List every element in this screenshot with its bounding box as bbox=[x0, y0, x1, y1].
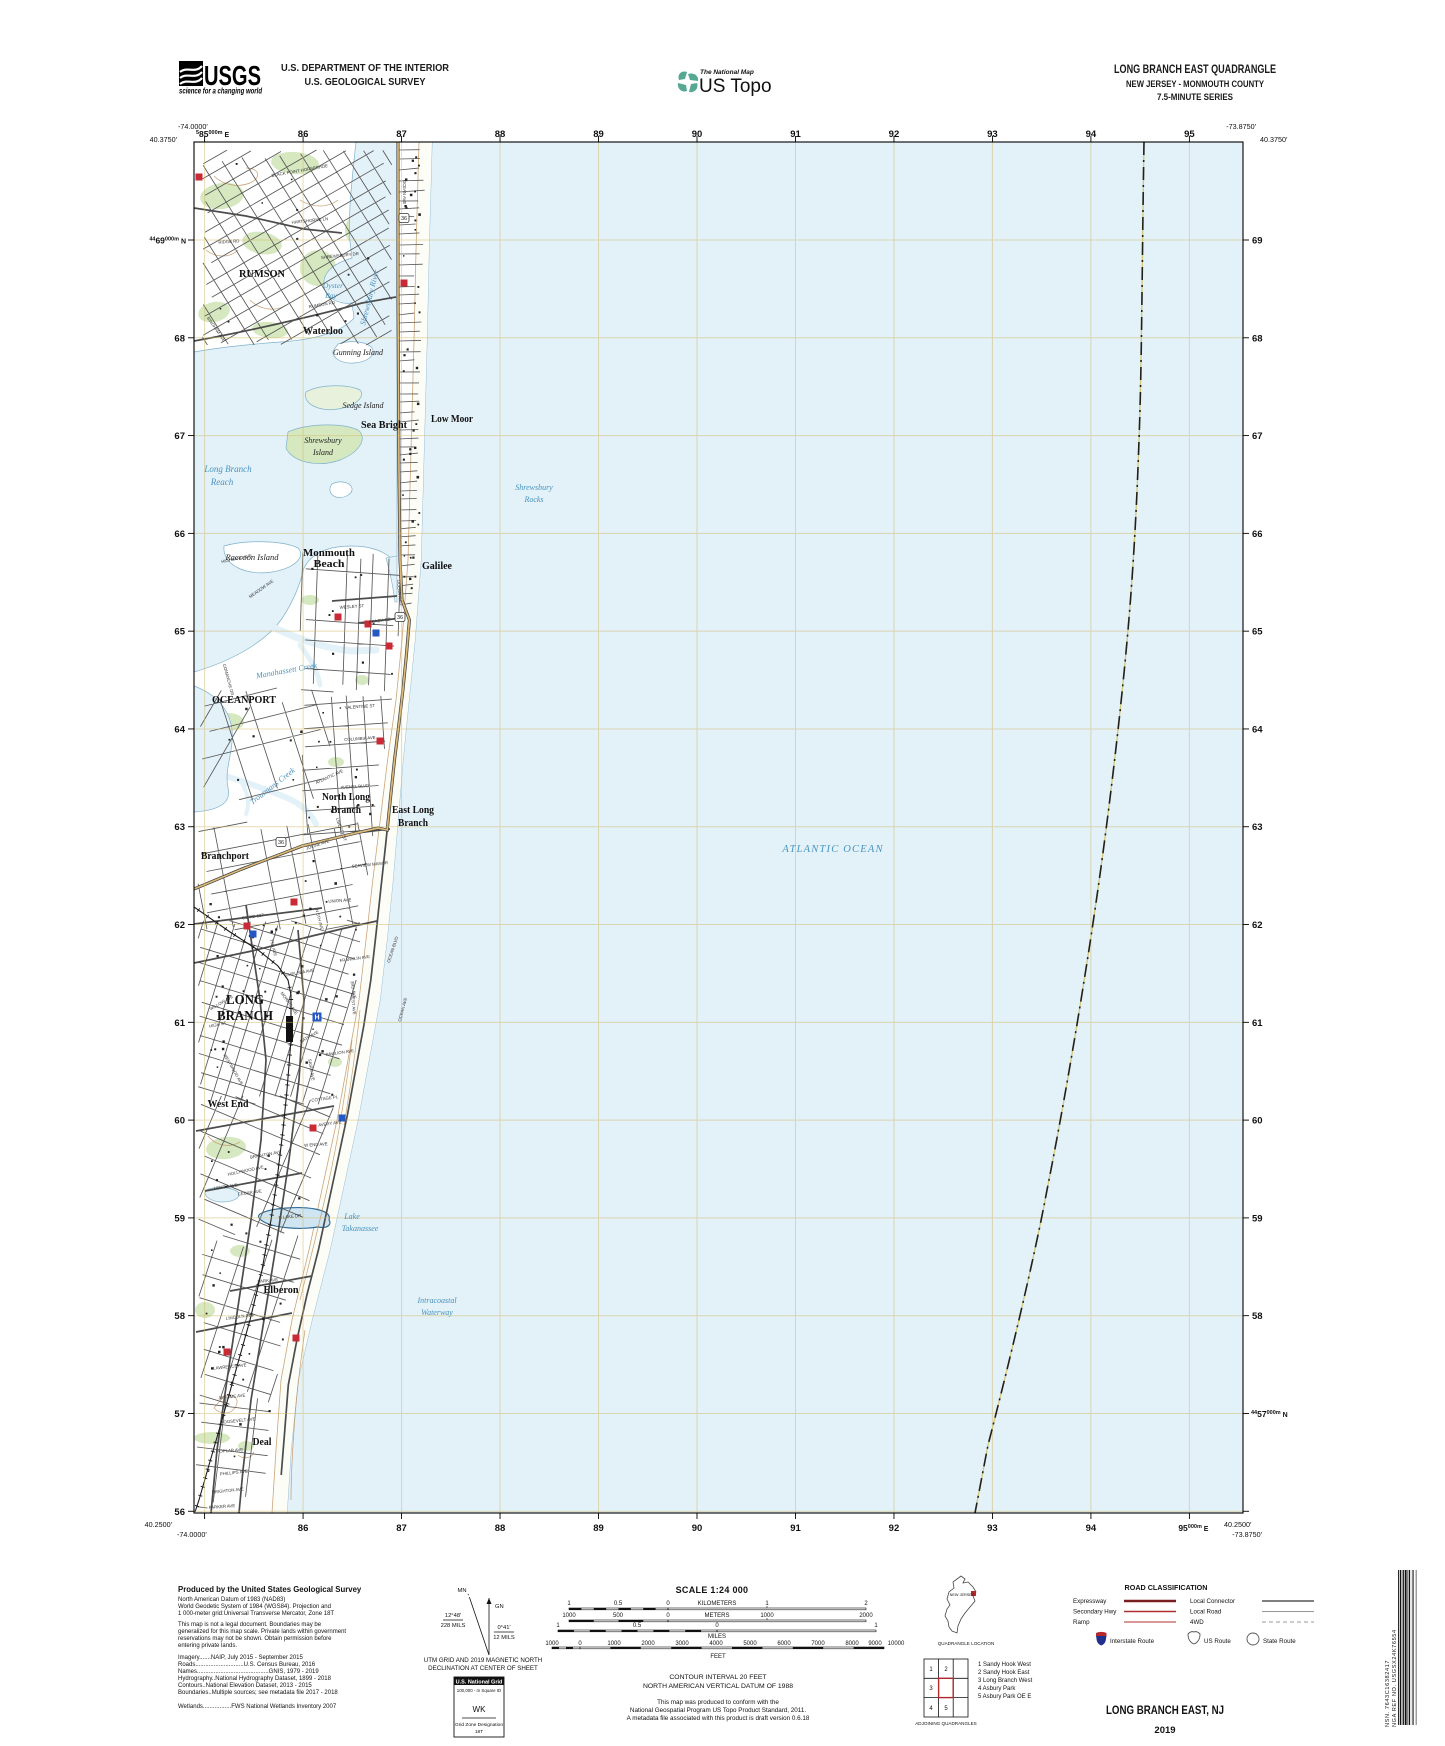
svg-text:90: 90 bbox=[692, 129, 703, 140]
svg-text:62: 62 bbox=[1252, 920, 1263, 931]
svg-text:Imagery.......NAIP, July 2015: Imagery.......NAIP, July 2015 - Septembe… bbox=[178, 1655, 304, 1661]
svg-text:93: 93 bbox=[987, 1523, 998, 1534]
svg-text:Roads.........................: Roads.............................U.S. C… bbox=[178, 1662, 316, 1668]
svg-text:1000: 1000 bbox=[562, 1613, 576, 1619]
svg-text:12°48′: 12°48′ bbox=[445, 1613, 461, 1619]
svg-text:Hydrography..National Hydrogra: Hydrography..National Hydrography Datase… bbox=[178, 1676, 332, 1682]
svg-text:East Long: East Long bbox=[392, 805, 434, 816]
svg-text:Monmouth: Monmouth bbox=[303, 548, 355, 559]
svg-text:88: 88 bbox=[495, 1523, 506, 1534]
svg-text:Secondary Hwy: Secondary Hwy bbox=[1073, 1609, 1117, 1616]
svg-text:West End: West End bbox=[208, 1099, 249, 1110]
svg-text:Names.........................: Names...................................… bbox=[178, 1669, 319, 1675]
svg-text:ATLANTIC OCEAN: ATLANTIC OCEAN bbox=[781, 844, 883, 855]
svg-text:FEET: FEET bbox=[710, 1654, 726, 1660]
svg-text:40.2500′: 40.2500′ bbox=[1224, 1520, 1252, 1529]
svg-text:Waterloo: Waterloo bbox=[303, 326, 343, 337]
svg-text:Sedge Island: Sedge Island bbox=[342, 401, 384, 410]
svg-text:Sea Bright: Sea Bright bbox=[361, 420, 407, 431]
svg-text:0.5: 0.5 bbox=[633, 1623, 642, 1629]
svg-text:Branch: Branch bbox=[398, 818, 428, 829]
svg-text:18T: 18T bbox=[475, 1729, 483, 1735]
svg-text:86: 86 bbox=[298, 1523, 309, 1534]
svg-text:Shrewsbury: Shrewsbury bbox=[515, 483, 553, 492]
svg-text:87: 87 bbox=[396, 1523, 407, 1534]
svg-text:60: 60 bbox=[174, 1116, 185, 1127]
svg-text:57: 57 bbox=[174, 1409, 185, 1420]
svg-text:reservations may not be shown.: reservations may not be shown. Obtain pe… bbox=[178, 1636, 332, 1642]
svg-text:-73.8750′: -73.8750′ bbox=[1226, 122, 1256, 131]
svg-text:Deal: Deal bbox=[253, 1437, 272, 1448]
svg-text:1 Sandy Hook West: 1 Sandy Hook West bbox=[978, 1662, 1031, 1668]
svg-text:36: 36 bbox=[401, 216, 407, 222]
svg-text:NSN. 7643C16382417: NSN. 7643C16382417 bbox=[1385, 1660, 1391, 1727]
svg-text:2000: 2000 bbox=[641, 1641, 655, 1647]
svg-text:2000: 2000 bbox=[859, 1613, 873, 1619]
svg-text:LONG BRANCH EAST, NJ: LONG BRANCH EAST, NJ bbox=[1106, 1705, 1224, 1717]
svg-text:LONG BRANCH EAST QUADRANGLE: LONG BRANCH EAST QUADRANGLE bbox=[1114, 64, 1276, 76]
svg-text:This map is not a legal docume: This map is not a legal document. Bounda… bbox=[178, 1622, 322, 1628]
svg-text:36: 36 bbox=[397, 615, 403, 621]
svg-text:RUMSON: RUMSON bbox=[239, 268, 285, 280]
svg-text:8000: 8000 bbox=[845, 1641, 859, 1647]
svg-text:92: 92 bbox=[889, 1523, 900, 1534]
svg-text:3 Long Branch West: 3 Long Branch West bbox=[978, 1678, 1033, 1684]
svg-text:40.3750′: 40.3750′ bbox=[1260, 135, 1288, 144]
svg-text:59: 59 bbox=[174, 1213, 185, 1224]
svg-text:Lake: Lake bbox=[343, 1212, 360, 1221]
svg-text:7000: 7000 bbox=[811, 1641, 825, 1647]
svg-text:OCEAN AVE: OCEAN AVE bbox=[402, 180, 407, 205]
svg-text:Interstate Route: Interstate Route bbox=[1110, 1638, 1155, 1645]
svg-text:65: 65 bbox=[174, 627, 185, 638]
svg-text:North Long: North Long bbox=[322, 792, 370, 803]
svg-text:-74.0000′: -74.0000′ bbox=[178, 122, 208, 131]
svg-text:2 Sandy Hook East: 2 Sandy Hook East bbox=[978, 1670, 1030, 1676]
svg-text:Branch: Branch bbox=[331, 805, 361, 816]
svg-text:Beach: Beach bbox=[314, 559, 345, 570]
svg-text:63: 63 bbox=[174, 822, 185, 833]
svg-text:Takanassee: Takanassee bbox=[342, 1224, 379, 1233]
svg-text:89: 89 bbox=[593, 129, 604, 140]
svg-text:entering private lands.: entering private lands. bbox=[178, 1643, 237, 1649]
svg-text:68: 68 bbox=[174, 333, 185, 344]
svg-text:Intracoastal: Intracoastal bbox=[416, 1296, 457, 1305]
svg-text:100,000 - m Square ID: 100,000 - m Square ID bbox=[457, 1688, 501, 1693]
svg-text:Boundaries..Multiple sources;: Boundaries..Multiple sources; see metada… bbox=[178, 1690, 338, 1696]
svg-text:3000: 3000 bbox=[675, 1641, 689, 1647]
svg-text:Shrewsbury: Shrewsbury bbox=[304, 436, 342, 445]
svg-text:North American Datum of 1983 (: North American Datum of 1983 (NAD83) bbox=[178, 1597, 285, 1603]
svg-text:U.S. DEPARTMENT OF THE INTERIO: U.S. DEPARTMENT OF THE INTERIOR bbox=[281, 62, 449, 74]
svg-text:67: 67 bbox=[174, 431, 185, 442]
svg-text:Contours..National Elevation D: Contours..National Elevation Dataset, 20… bbox=[178, 1683, 312, 1689]
svg-text:Gunning Island: Gunning Island bbox=[333, 348, 384, 357]
svg-text:66: 66 bbox=[1252, 529, 1263, 540]
svg-text:QUADRANGLE LOCATION: QUADRANGLE LOCATION bbox=[938, 1641, 995, 1646]
svg-text:5 Asbury Park OE E: 5 Asbury Park OE E bbox=[978, 1694, 1031, 1700]
svg-text:228 MILS: 228 MILS bbox=[441, 1623, 466, 1629]
svg-text:1000: 1000 bbox=[607, 1641, 621, 1647]
svg-text:61: 61 bbox=[174, 1018, 185, 1029]
svg-text:ROAD CLASSIFICATION: ROAD CLASSIFICATION bbox=[1125, 1583, 1208, 1592]
svg-text:56: 56 bbox=[174, 1507, 185, 1518]
svg-text:0°41′: 0°41′ bbox=[497, 1625, 510, 1631]
svg-text:science for a changing world: science for a changing world bbox=[179, 87, 263, 96]
svg-text:Elberon: Elberon bbox=[264, 1285, 299, 1296]
svg-text:62: 62 bbox=[174, 920, 185, 931]
svg-text:40.3750′: 40.3750′ bbox=[150, 135, 178, 144]
svg-text:500: 500 bbox=[613, 1613, 624, 1619]
svg-text:A metadata file associated wit: A metadata file associated with this pro… bbox=[627, 1715, 810, 1722]
svg-text:H: H bbox=[314, 1015, 319, 1022]
svg-text:Rocks: Rocks bbox=[523, 495, 543, 504]
svg-text:US Topo: US Topo bbox=[699, 76, 772, 97]
svg-text:86: 86 bbox=[298, 129, 309, 140]
svg-text:60: 60 bbox=[1252, 1116, 1263, 1127]
svg-text:Reach: Reach bbox=[210, 477, 234, 487]
svg-text:9000: 9000 bbox=[868, 1641, 882, 1647]
svg-text:4000: 4000 bbox=[709, 1641, 723, 1647]
svg-text:Ramp: Ramp bbox=[1073, 1619, 1090, 1626]
svg-text:Grid Zone Designation: Grid Zone Designation bbox=[455, 1722, 503, 1728]
svg-text:U.S. National Grid: U.S. National Grid bbox=[456, 1680, 503, 1686]
svg-text:1000: 1000 bbox=[760, 1613, 774, 1619]
svg-text:58: 58 bbox=[174, 1311, 185, 1322]
svg-text:1000: 1000 bbox=[545, 1641, 559, 1647]
svg-text:7.5-MINUTE SERIES: 7.5-MINUTE SERIES bbox=[1157, 92, 1233, 102]
svg-text:36: 36 bbox=[278, 840, 284, 846]
svg-text:OCEANPORT: OCEANPORT bbox=[212, 695, 276, 706]
svg-text:WK: WK bbox=[473, 1705, 487, 1714]
svg-text:64: 64 bbox=[174, 724, 185, 735]
svg-text:0.5: 0.5 bbox=[614, 1601, 623, 1607]
svg-text:Island: Island bbox=[312, 448, 334, 457]
svg-text:2019: 2019 bbox=[1154, 1725, 1175, 1736]
svg-text:65: 65 bbox=[1252, 627, 1263, 638]
svg-text:4 Asbury Park: 4 Asbury Park bbox=[978, 1686, 1016, 1692]
svg-text:generalized for this map scale: generalized for this map scale. Private … bbox=[178, 1629, 346, 1635]
svg-text:Expressway: Expressway bbox=[1073, 1598, 1107, 1605]
svg-text:MILES: MILES bbox=[708, 1634, 726, 1640]
svg-text:1 000-meter grid:Universal Tra: 1 000-meter grid:Universal Transverse Me… bbox=[178, 1611, 334, 1617]
svg-text:Low Moor: Low Moor bbox=[431, 414, 473, 425]
svg-text:10000: 10000 bbox=[888, 1641, 905, 1647]
svg-text:The National Map: The National Map bbox=[700, 69, 754, 76]
svg-text:World Geodetic System of 1984: World Geodetic System of 1984 (WGS84). P… bbox=[178, 1604, 331, 1610]
svg-text:91: 91 bbox=[790, 1523, 801, 1534]
svg-text:Oyster: Oyster bbox=[323, 281, 343, 290]
svg-text:MN: MN bbox=[457, 1588, 466, 1594]
svg-text:NEW JERSEY: NEW JERSEY bbox=[950, 1593, 975, 1597]
svg-text:Bay: Bay bbox=[325, 291, 337, 300]
svg-text:5000: 5000 bbox=[743, 1641, 757, 1647]
svg-text:6000: 6000 bbox=[777, 1641, 791, 1647]
svg-text:US Route: US Route bbox=[1204, 1638, 1231, 1645]
svg-text:Wetlands.................FWS N: Wetlands.................FWS National We… bbox=[178, 1704, 337, 1710]
svg-text:KILOMETERS: KILOMETERS bbox=[698, 1601, 737, 1607]
svg-text:89: 89 bbox=[593, 1523, 604, 1534]
svg-text:NEW JERSEY - MONMOUTH COUNTY: NEW JERSEY - MONMOUTH COUNTY bbox=[1126, 79, 1264, 89]
svg-text:63: 63 bbox=[1252, 822, 1263, 833]
svg-text:40.2500′: 40.2500′ bbox=[145, 1520, 173, 1529]
svg-text:SCALE 1:24 000: SCALE 1:24 000 bbox=[676, 1585, 749, 1595]
svg-text:Waterway: Waterway bbox=[421, 1308, 453, 1317]
svg-text:Produced by the United States: Produced by the United States Geological… bbox=[178, 1585, 362, 1594]
svg-text:This map was produced to confo: This map was produced to conform with th… bbox=[657, 1699, 779, 1706]
svg-text:59: 59 bbox=[1252, 1213, 1263, 1224]
svg-text:-74.0000′: -74.0000′ bbox=[177, 1530, 207, 1539]
svg-text:State Route: State Route bbox=[1263, 1638, 1296, 1645]
svg-text:UTM GRID AND 2019 MAGNETIC NOR: UTM GRID AND 2019 MAGNETIC NORTH bbox=[424, 1657, 543, 1664]
svg-text:94: 94 bbox=[1086, 1523, 1097, 1534]
svg-text:66: 66 bbox=[174, 529, 185, 540]
svg-text:90: 90 bbox=[692, 1523, 703, 1534]
svg-text:GN: GN bbox=[495, 1604, 504, 1610]
svg-text:68: 68 bbox=[1252, 333, 1263, 344]
svg-text:92: 92 bbox=[889, 129, 900, 140]
svg-text:94: 94 bbox=[1086, 129, 1097, 140]
svg-text:CONTOUR INTERVAL 20 FEET: CONTOUR INTERVAL 20 FEET bbox=[669, 1674, 766, 1681]
svg-text:4WD: 4WD bbox=[1190, 1619, 1204, 1626]
svg-text:Long Branch: Long Branch bbox=[203, 464, 252, 474]
svg-text:91: 91 bbox=[790, 129, 801, 140]
svg-text:ADJOINING QUADRANGLES: ADJOINING QUADRANGLES bbox=[915, 1721, 977, 1726]
svg-text:-73.8750′: -73.8750′ bbox=[1232, 1530, 1262, 1539]
svg-text:95: 95 bbox=[1184, 129, 1195, 140]
svg-text:National Geospatial Program US: National Geospatial Program US Topo Prod… bbox=[630, 1707, 806, 1714]
svg-text:88: 88 bbox=[495, 129, 506, 140]
svg-text:NORTH AMERICAN VERTICAL DATUM: NORTH AMERICAN VERTICAL DATUM OF 1988 bbox=[643, 1683, 793, 1690]
svg-text:61: 61 bbox=[1252, 1018, 1263, 1029]
svg-text:87: 87 bbox=[396, 129, 407, 140]
svg-text:93: 93 bbox=[987, 129, 998, 140]
svg-text:12 MILS: 12 MILS bbox=[493, 1635, 515, 1641]
svg-text:U.S. GEOLOGICAL SURVEY: U.S. GEOLOGICAL SURVEY bbox=[305, 76, 426, 88]
svg-text:58: 58 bbox=[1252, 1311, 1263, 1322]
svg-text:NGA REF NO. USGSX24K76554: NGA REF NO. USGSX24K76554 bbox=[1392, 1629, 1398, 1727]
svg-text:Local Road: Local Road bbox=[1190, 1609, 1222, 1616]
svg-text:Local Connector: Local Connector bbox=[1190, 1598, 1235, 1605]
svg-text:64: 64 bbox=[1252, 724, 1263, 735]
svg-text:67: 67 bbox=[1252, 431, 1263, 442]
svg-text:METERS: METERS bbox=[704, 1613, 729, 1619]
svg-text:DECLINATION AT CENTER OF SHEET: DECLINATION AT CENTER OF SHEET bbox=[428, 1665, 538, 1672]
svg-text:Branchport: Branchport bbox=[201, 851, 250, 862]
svg-text:Galilee: Galilee bbox=[422, 561, 453, 572]
svg-text:69: 69 bbox=[1252, 236, 1263, 247]
